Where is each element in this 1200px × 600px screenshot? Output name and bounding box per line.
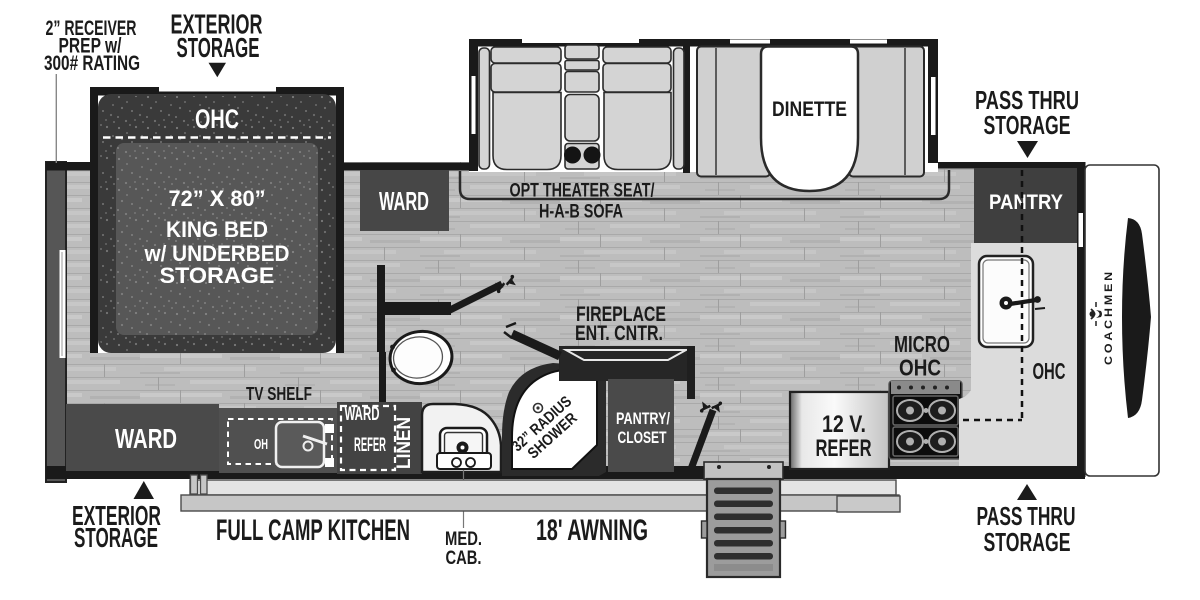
svg-text:MICRO: MICRO [894, 331, 950, 357]
svg-text:FULL CAMP KITCHEN: FULL CAMP KITCHEN [216, 514, 410, 547]
svg-text:WARD: WARD [115, 423, 177, 454]
svg-text:LINEN: LINEN [394, 417, 415, 469]
svg-text:H-A-B SOFA: H-A-B SOFA [539, 202, 623, 223]
svg-text:CLOSET: CLOSET [618, 428, 667, 447]
svg-text:STORAGE: STORAGE [984, 527, 1071, 557]
svg-text:STORAGE: STORAGE [984, 110, 1071, 140]
svg-text:PANTRY/: PANTRY/ [616, 409, 670, 428]
svg-text:12 V.: 12 V. [822, 411, 866, 438]
svg-text:300# RATING: 300# RATING [44, 52, 140, 75]
svg-text:WARD: WARD [345, 404, 380, 425]
svg-text:STORAGE: STORAGE [177, 32, 260, 63]
svg-text:STORAGE: STORAGE [74, 522, 158, 553]
svg-text:OHC: OHC [195, 104, 239, 134]
svg-text:WARD: WARD [379, 186, 429, 216]
svg-text:OH: OH [254, 437, 268, 453]
svg-text:CAB.: CAB. [446, 548, 482, 569]
svg-text:ENT. CNTR.: ENT. CNTR. [575, 322, 663, 345]
svg-text:STORAGE: STORAGE [160, 263, 275, 288]
svg-text:18' AWNING: 18' AWNING [536, 514, 648, 547]
svg-text:TV SHELF: TV SHELF [246, 383, 312, 404]
svg-text:KING BED: KING BED [166, 217, 268, 242]
svg-text:MED.: MED. [445, 529, 482, 550]
svg-text:COACHMEN: COACHMEN [1103, 269, 1115, 365]
svg-text:REFER: REFER [816, 435, 872, 462]
svg-text:DINETTE: DINETTE [772, 98, 847, 121]
svg-text:OPT THEATER SEAT/: OPT THEATER SEAT/ [510, 181, 656, 202]
svg-text:OHC: OHC [899, 355, 941, 381]
svg-text:REFER: REFER [354, 435, 386, 456]
svg-text:72” X 80”: 72” X 80” [169, 186, 266, 211]
svg-text:OHC: OHC [1033, 358, 1066, 384]
svg-text:PANTRY: PANTRY [989, 190, 1063, 214]
